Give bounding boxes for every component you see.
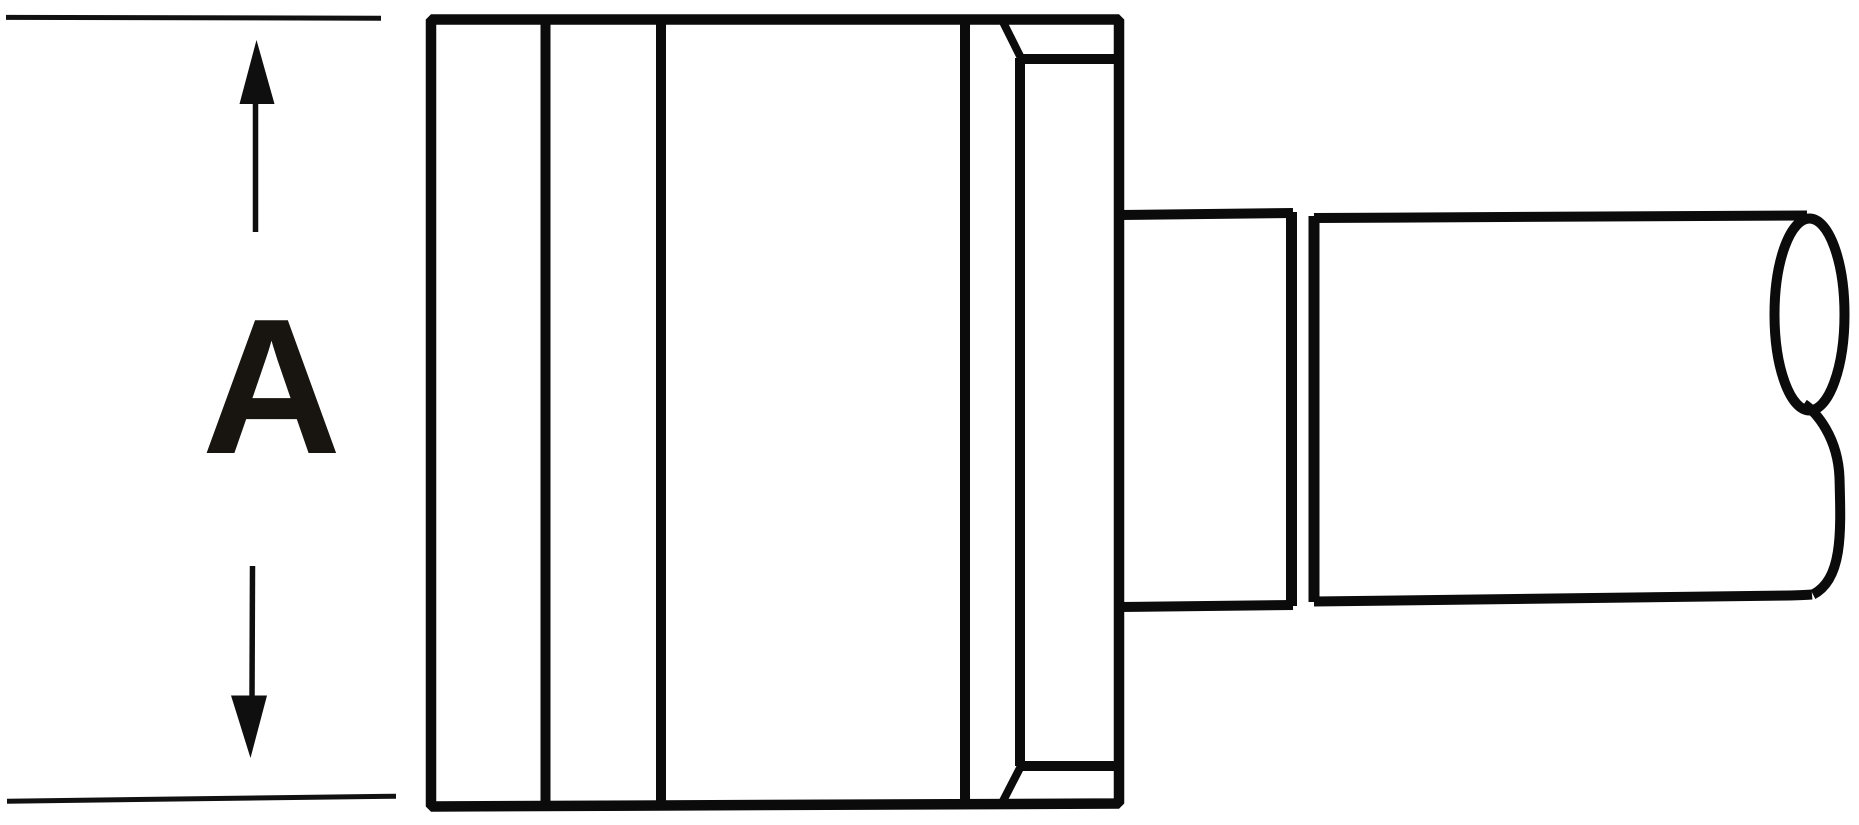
svg-text:A: A	[202, 278, 341, 494]
